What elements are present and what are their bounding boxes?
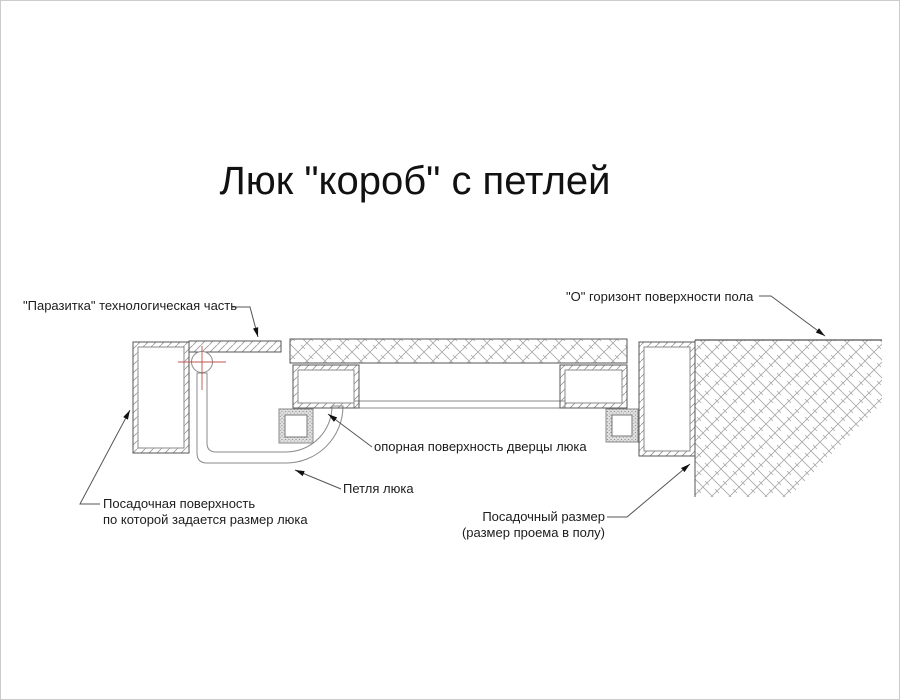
technical-drawing: [1, 1, 900, 700]
technological-strip: [189, 341, 281, 352]
door-bottom-sheet: [354, 401, 565, 408]
label-seating-size-line1: Посадочный размер: [482, 509, 605, 524]
concrete-floor-hatch: [695, 340, 882, 497]
label-support-surface: опорная поверхность дверцы люка: [374, 439, 587, 455]
leader-floor-horizon: [759, 296, 825, 336]
label-seating-surface-line2: по которой задается размер люка: [103, 512, 308, 527]
leader-hinge: [295, 470, 341, 489]
label-parasitka: "Паразитка" технологическая часть: [23, 298, 237, 314]
label-seating-surface-line1: Посадочная поверхность: [103, 496, 255, 511]
left-frame-profile: [133, 342, 189, 453]
hatch-door-tile-slab: [290, 339, 627, 363]
label-seating-surface: Посадочная поверхность по которой задает…: [103, 496, 308, 528]
leader-seating-surface: [80, 410, 130, 504]
label-floor-horizon: "О" горизонт поверхности пола: [566, 289, 753, 305]
right-support-pad: [606, 409, 638, 442]
label-hinge: Петля люка: [343, 481, 414, 497]
label-seating-size-line2: (размер проема в полу): [462, 525, 605, 540]
door-right-box-profile: [560, 365, 627, 408]
left-support-pad: [279, 409, 313, 443]
right-frame-profile: [639, 342, 695, 456]
diagram-canvas: Люк "короб" с петлей: [0, 0, 900, 700]
leader-seating-size: [607, 464, 690, 517]
door-left-box-profile: [293, 365, 359, 408]
label-seating-size: Посадочный размер (размер проема в полу): [431, 509, 605, 541]
